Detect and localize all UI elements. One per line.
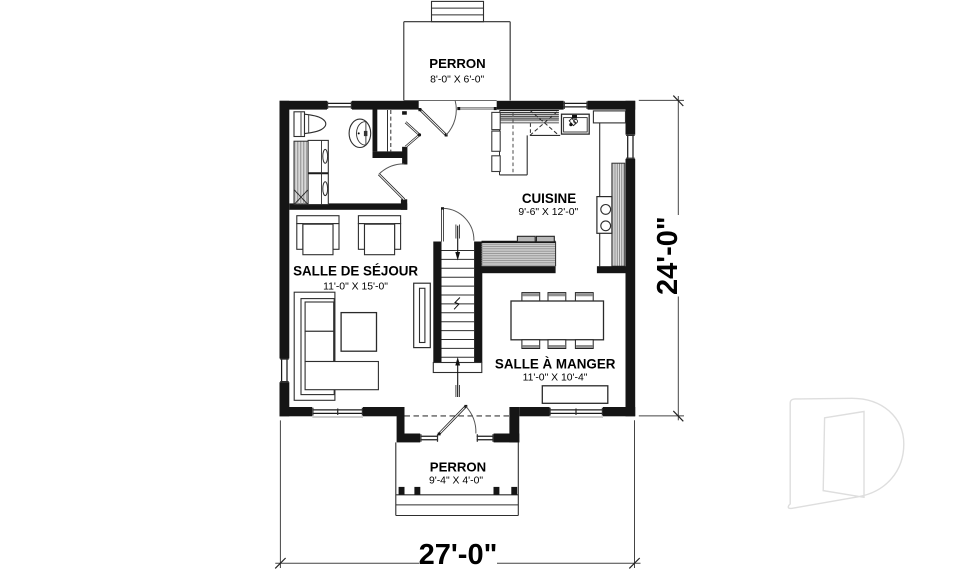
svg-text:8'-0" X 6'-0": 8'-0" X 6'-0" [430,74,484,85]
svg-text:SALLE À MANGER: SALLE À MANGER [495,357,616,372]
svg-text:27'-0": 27'-0" [419,539,498,569]
svg-text:SALLE DE SÉJOUR: SALLE DE SÉJOUR [293,264,418,279]
svg-text:PERRON: PERRON [430,460,486,475]
svg-text:CUISINE: CUISINE [522,191,576,206]
svg-text:11'-0" X 10'-4": 11'-0" X 10'-4" [523,373,588,384]
svg-text:PERRON: PERRON [429,56,485,71]
svg-text:9'-4" X 4'-0": 9'-4" X 4'-0" [429,476,483,487]
svg-text:9'-6" X 12'-0": 9'-6" X 12'-0" [518,207,578,218]
svg-text:11'-0" X 15'-0": 11'-0" X 15'-0" [323,282,388,293]
svg-text:24'-0": 24'-0" [652,216,684,295]
